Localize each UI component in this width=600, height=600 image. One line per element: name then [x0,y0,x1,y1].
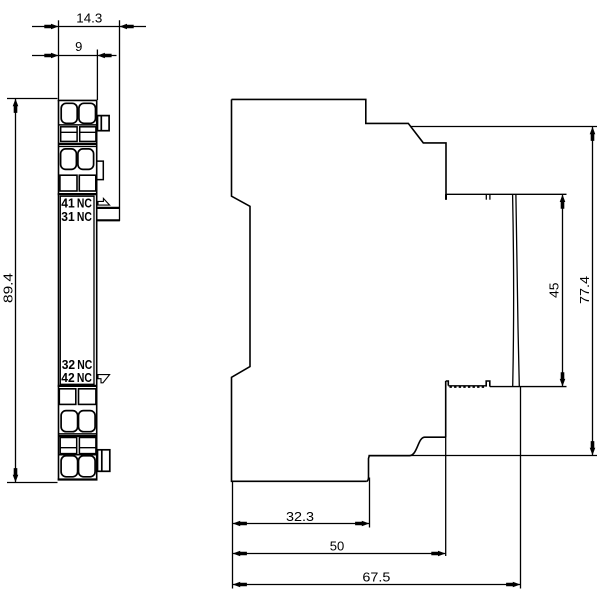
svg-text:42NC: 42NC [61,370,92,385]
svg-text:31NC: 31NC [61,209,92,224]
svg-text:9: 9 [75,39,82,54]
svg-text:89.4: 89.4 [1,273,16,303]
svg-text:50: 50 [330,539,345,554]
svg-text:67.5: 67.5 [362,570,390,585]
svg-text:77.4: 77.4 [577,276,592,304]
svg-text:14.3: 14.3 [76,10,102,25]
svg-text:32.3: 32.3 [286,509,314,524]
svg-text:45: 45 [547,282,562,298]
